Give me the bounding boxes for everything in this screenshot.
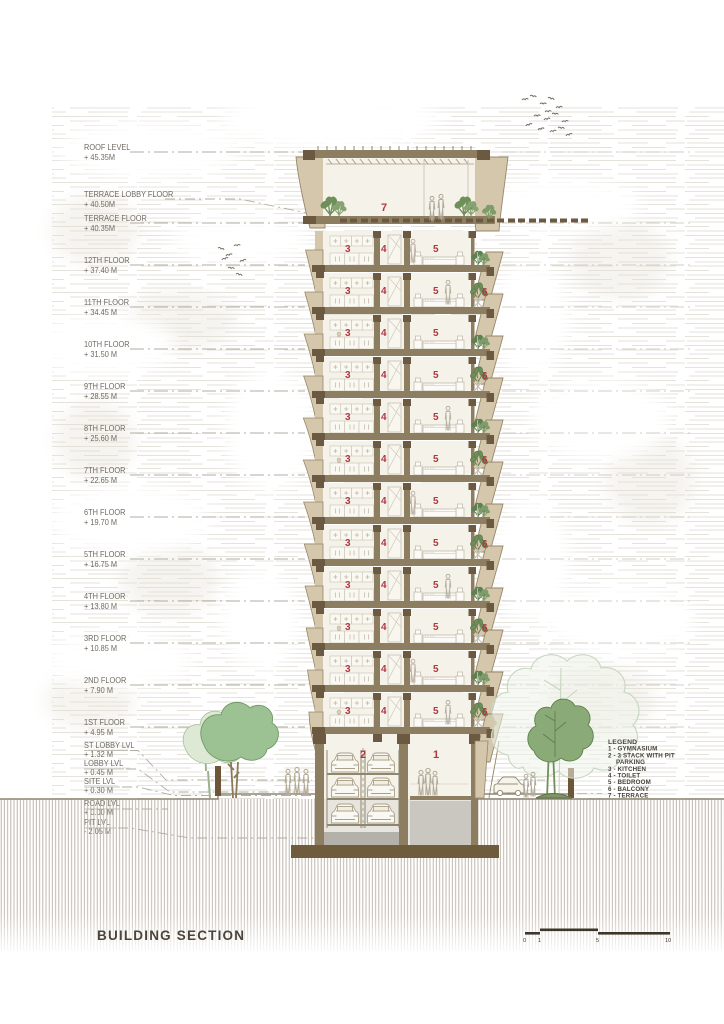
svg-text:3: 3 xyxy=(345,370,351,381)
svg-text:5: 5 xyxy=(433,664,439,675)
svg-text:6: 6 xyxy=(482,371,488,382)
svg-text:3: 3 xyxy=(345,286,351,297)
svg-text:10TH FLOOR: 10TH FLOOR xyxy=(84,340,130,350)
svg-text:4: 4 xyxy=(381,328,387,339)
svg-text:5: 5 xyxy=(433,412,439,423)
svg-text:5: 5 xyxy=(433,454,439,465)
svg-text:+ 40.35M: + 40.35M xyxy=(84,224,115,234)
svg-text:11TH FLOOR: 11TH FLOOR xyxy=(84,298,129,308)
svg-text:+ 28.55 M: + 28.55 M xyxy=(84,392,117,402)
svg-text:5: 5 xyxy=(433,538,439,549)
svg-text:6: 6 xyxy=(482,623,488,634)
svg-text:6TH FLOOR: 6TH FLOOR xyxy=(84,508,126,518)
svg-text:1: 1 xyxy=(433,749,439,761)
svg-text:4: 4 xyxy=(381,454,387,465)
svg-text:3: 3 xyxy=(345,454,351,465)
svg-text:+ 19.70 M: + 19.70 M xyxy=(84,518,117,528)
svg-text:5: 5 xyxy=(596,938,599,944)
svg-text:4: 4 xyxy=(381,706,387,717)
svg-text:3: 3 xyxy=(345,622,351,633)
svg-text:6: 6 xyxy=(482,455,488,466)
svg-text:3: 3 xyxy=(345,412,351,423)
svg-text:+ 37.40 M: + 37.40 M xyxy=(84,266,117,276)
svg-text:5: 5 xyxy=(433,328,439,339)
svg-text:4: 4 xyxy=(381,622,387,633)
svg-text:4: 4 xyxy=(381,496,387,507)
svg-text:+ 40.50M: + 40.50M xyxy=(84,200,115,210)
svg-text:+ 7.90 M: + 7.90 M xyxy=(84,686,113,696)
svg-text:4: 4 xyxy=(381,244,387,255)
svg-text:1: 1 xyxy=(538,938,541,944)
svg-text:+ 4.95 M: + 4.95 M xyxy=(84,728,113,738)
svg-text:3: 3 xyxy=(345,496,351,507)
svg-text:3: 3 xyxy=(345,538,351,549)
svg-text:4TH FLOOR: 4TH FLOOR xyxy=(84,592,126,602)
svg-text:+ 10.85 M: + 10.85 M xyxy=(84,644,117,654)
svg-text:4: 4 xyxy=(381,664,387,675)
svg-text:2: 2 xyxy=(360,749,366,761)
svg-text:7: 7 xyxy=(381,202,387,214)
svg-text:+ 45.35M: + 45.35M xyxy=(84,153,115,163)
svg-text:5TH FLOOR: 5TH FLOOR xyxy=(84,550,126,560)
svg-text:+ 22.65 M: + 22.65 M xyxy=(84,476,117,486)
svg-text:1ST FLOOR: 1ST FLOOR xyxy=(84,718,125,728)
svg-text:0: 0 xyxy=(523,938,526,944)
svg-text:4: 4 xyxy=(381,286,387,297)
svg-text:2ND FLOOR: 2ND FLOOR xyxy=(84,676,127,686)
svg-text:5: 5 xyxy=(433,286,439,297)
svg-text:6: 6 xyxy=(482,707,488,718)
svg-text:12TH FLOOR: 12TH FLOOR xyxy=(84,256,130,266)
svg-text:3: 3 xyxy=(345,664,351,675)
svg-text:10: 10 xyxy=(665,938,671,944)
svg-text:5: 5 xyxy=(433,496,439,507)
svg-text:BUILDING SECTION: BUILDING SECTION xyxy=(97,928,245,943)
svg-text:4: 4 xyxy=(381,412,387,423)
svg-text:3: 3 xyxy=(345,328,351,339)
svg-text:7 - TERRACE: 7 - TERRACE xyxy=(608,793,649,800)
svg-text:3: 3 xyxy=(345,580,351,591)
svg-text:ROOF LEVEL: ROOF LEVEL xyxy=(84,143,131,153)
svg-text:7TH FLOOR: 7TH FLOOR xyxy=(84,466,126,476)
svg-text:+ 31.50 M: + 31.50 M xyxy=(84,350,117,360)
svg-text:6: 6 xyxy=(482,539,488,550)
svg-text:3: 3 xyxy=(345,244,351,255)
svg-text:9TH FLOOR: 9TH FLOOR xyxy=(84,382,126,392)
svg-text:5: 5 xyxy=(433,706,439,717)
svg-text:3: 3 xyxy=(345,706,351,717)
svg-text:5: 5 xyxy=(433,244,439,255)
svg-text:8TH FLOOR: 8TH FLOOR xyxy=(84,424,126,434)
svg-text:4: 4 xyxy=(381,538,387,549)
svg-text:4: 4 xyxy=(381,580,387,591)
svg-text:4: 4 xyxy=(381,370,387,381)
svg-text:6: 6 xyxy=(482,287,488,298)
svg-text:+ 13.80 M: + 13.80 M xyxy=(84,602,117,612)
svg-text:5: 5 xyxy=(433,370,439,381)
svg-text:+ 34.45 M: + 34.45 M xyxy=(84,308,117,318)
svg-text:+ 25.60 M: + 25.60 M xyxy=(84,434,117,444)
svg-text:3RD FLOOR: 3RD FLOOR xyxy=(84,634,127,644)
svg-text:+ 16.75 M: + 16.75 M xyxy=(84,560,117,570)
svg-text:5: 5 xyxy=(433,580,439,591)
svg-text:5: 5 xyxy=(433,622,439,633)
svg-text:TERRACE FLOOR: TERRACE FLOOR xyxy=(84,214,147,224)
svg-text:TERRACE LOBBY FLOOR: TERRACE LOBBY FLOOR xyxy=(84,190,174,200)
